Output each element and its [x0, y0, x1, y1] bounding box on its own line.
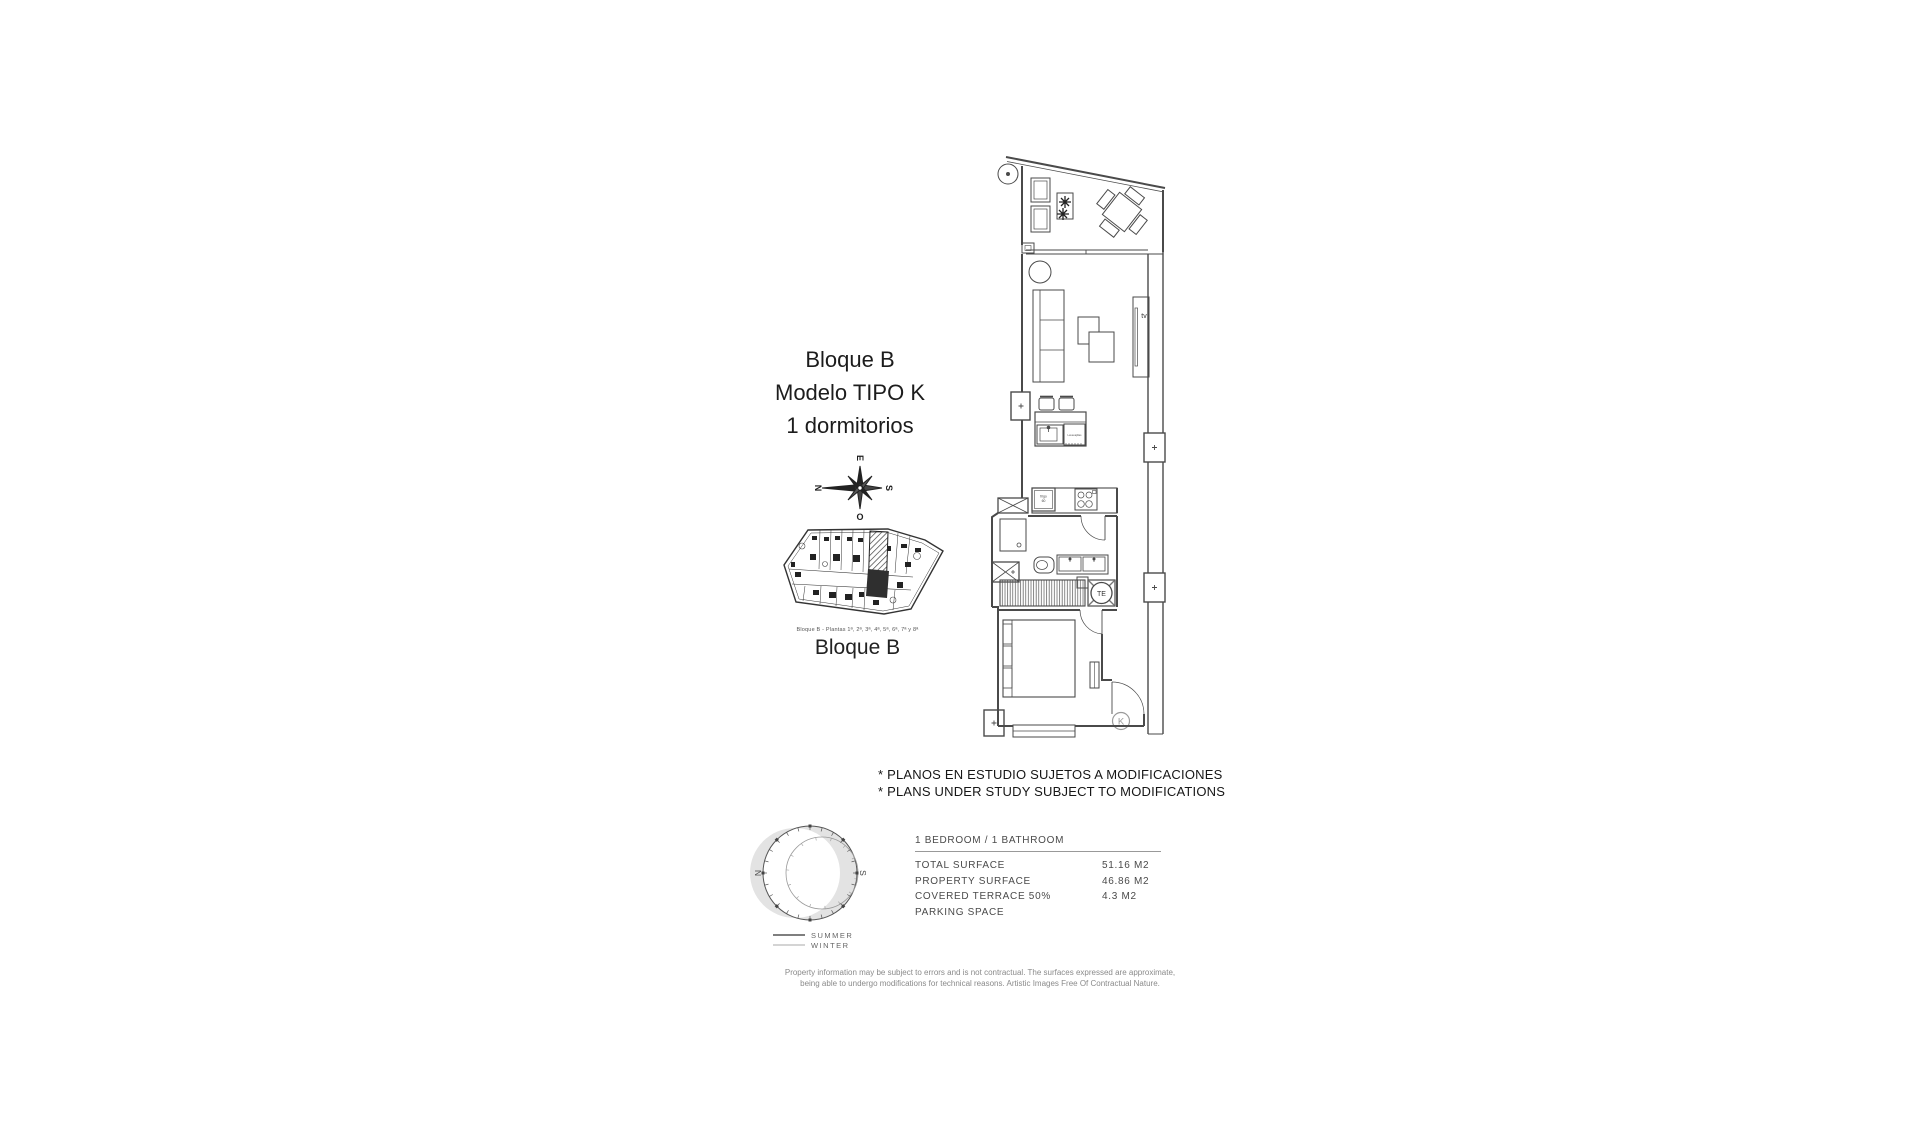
- disclaimer-line-2: being able to undergo modifications for …: [740, 979, 1220, 990]
- fridge-label-1: frigo: [1040, 495, 1047, 499]
- disclaimer: Property information may be subject to e…: [740, 968, 1220, 989]
- te-label: TE: [1097, 591, 1106, 598]
- winter-label: WINTER: [811, 941, 850, 950]
- block-map-caption: Bloque B - Plantas 1ª, 2ª, 3ª, 4ª, 5ª, 6…: [765, 627, 950, 633]
- shaft2-icon: [992, 562, 1019, 582]
- block-map-outline: [784, 529, 943, 614]
- kitchen-peninsula-icon: Lavavajillas: [1035, 412, 1086, 446]
- bedroom-window-icon: [998, 725, 1144, 737]
- compass-south-label: S: [884, 485, 894, 491]
- note-line-es: * PLANOS EN ESTUDIO SUJETOS A MODIFICACI…: [878, 766, 1225, 783]
- kitchen-counter-icon: frigo 60: [1032, 488, 1117, 513]
- bedroom-door-arc: [1080, 610, 1102, 634]
- tv-label: tv: [1141, 313, 1147, 320]
- row-value: 4.3 M2: [1102, 891, 1137, 902]
- shower-room-icon: [1000, 519, 1026, 551]
- side-table-icon: [1029, 261, 1051, 283]
- block-map-label: Bloque B: [765, 636, 950, 660]
- sun-south-label: S: [858, 870, 868, 876]
- right-gallery: [1144, 252, 1165, 734]
- title-block: Bloque B Modelo TIPO K 1 dormitorios: [760, 343, 940, 442]
- compass-west-label: O: [856, 512, 863, 522]
- hatched-floor: [1000, 580, 1085, 606]
- kitchen: Lavavajillas frigo 60: [998, 397, 1117, 514]
- fridge-label-2: 60: [1042, 499, 1046, 503]
- row-label: COVERED TERRACE 50%: [915, 891, 1051, 902]
- hob-icon: [1075, 489, 1097, 510]
- spec-table: 1 BEDROOM / 1 BATHROOM TOTAL SURFACE 51.…: [915, 835, 1161, 922]
- te-unit-icon: TE: [1088, 580, 1115, 606]
- title-line-bedrooms: 1 dormitorios: [760, 409, 940, 442]
- sun-legend: SUMMER WINTER: [773, 931, 853, 950]
- dark-core: [866, 569, 889, 598]
- title-line-model: Modelo TIPO K: [760, 376, 940, 409]
- table-row: PARKING SPACE: [915, 907, 1161, 923]
- summer-label: SUMMER: [811, 931, 853, 940]
- bathroom: TE: [992, 513, 1117, 607]
- living-furniture: tv: [1029, 261, 1149, 382]
- spec-table-rows: TOTAL SURFACE 51.16 M2 PROPERTY SURFACE …: [915, 860, 1161, 922]
- bedroom: K: [984, 607, 1144, 737]
- row-value: 46.86 M2: [1102, 876, 1149, 887]
- wardrobe-icon: [1090, 662, 1099, 688]
- compass-north-label: N: [813, 485, 823, 492]
- floor-plan: tv Lavavajillas frigo 60: [978, 148, 1178, 748]
- tv-unit-icon: tv: [1133, 297, 1149, 377]
- compass-east-label: E: [855, 455, 865, 461]
- dishwasher-label: Lavavajillas: [1068, 433, 1083, 437]
- compass-star-icon: [822, 466, 882, 509]
- plant-table-icon: [1057, 193, 1073, 220]
- double-sink-icon: [1057, 555, 1108, 574]
- bar-stools-icon: [1039, 397, 1074, 411]
- lounge-chair-icon: [1031, 178, 1050, 232]
- shaft-icon: [998, 498, 1028, 513]
- bath-door-arc: [1081, 516, 1105, 540]
- coffee-tables-icon: [1078, 317, 1114, 362]
- row-label: TOTAL SURFACE: [915, 860, 1005, 871]
- entrance-door-icon: [1112, 682, 1144, 726]
- table-row: TOTAL SURFACE 51.16 M2: [915, 860, 1161, 876]
- sun-north-label: N: [753, 870, 763, 876]
- toilet-icon: [1034, 557, 1054, 573]
- table-row: PROPERTY SURFACE 46.86 M2: [915, 876, 1161, 892]
- note-line-en: * PLANS UNDER STUDY SUBJECT TO MODIFICAT…: [878, 783, 1225, 800]
- sofa-icon: [1033, 290, 1064, 382]
- table-row: COVERED TERRACE 50% 4.3 M2: [915, 891, 1161, 907]
- plant-pot-icon: [998, 164, 1018, 184]
- compass-rose: E S O N: [812, 450, 927, 524]
- spec-table-header: 1 BEDROOM / 1 BATHROOM: [915, 835, 1161, 852]
- title-line-block: Bloque B: [760, 343, 940, 376]
- sun-path-diagram: N S SUMMER WINTER: [745, 818, 900, 958]
- modification-notes: * PLANOS EN ESTUDIO SUJETOS A MODIFICACI…: [878, 766, 1225, 800]
- brochure-page: { "title_block": { "line1": "Bloque B", …: [0, 0, 1920, 1140]
- row-label: PROPERTY SURFACE: [915, 876, 1031, 887]
- block-map: [765, 524, 950, 628]
- living-walls: [1011, 254, 1030, 498]
- row-value: 51.16 M2: [1102, 860, 1149, 871]
- bed-icon: [1003, 620, 1075, 697]
- block-map-units: [791, 531, 921, 605]
- dining-set-icon: [1087, 177, 1157, 247]
- terrace-walls: [1006, 157, 1165, 254]
- row-label: PARKING SPACE: [915, 907, 1004, 918]
- disclaimer-line-1: Property information may be subject to e…: [740, 968, 1220, 979]
